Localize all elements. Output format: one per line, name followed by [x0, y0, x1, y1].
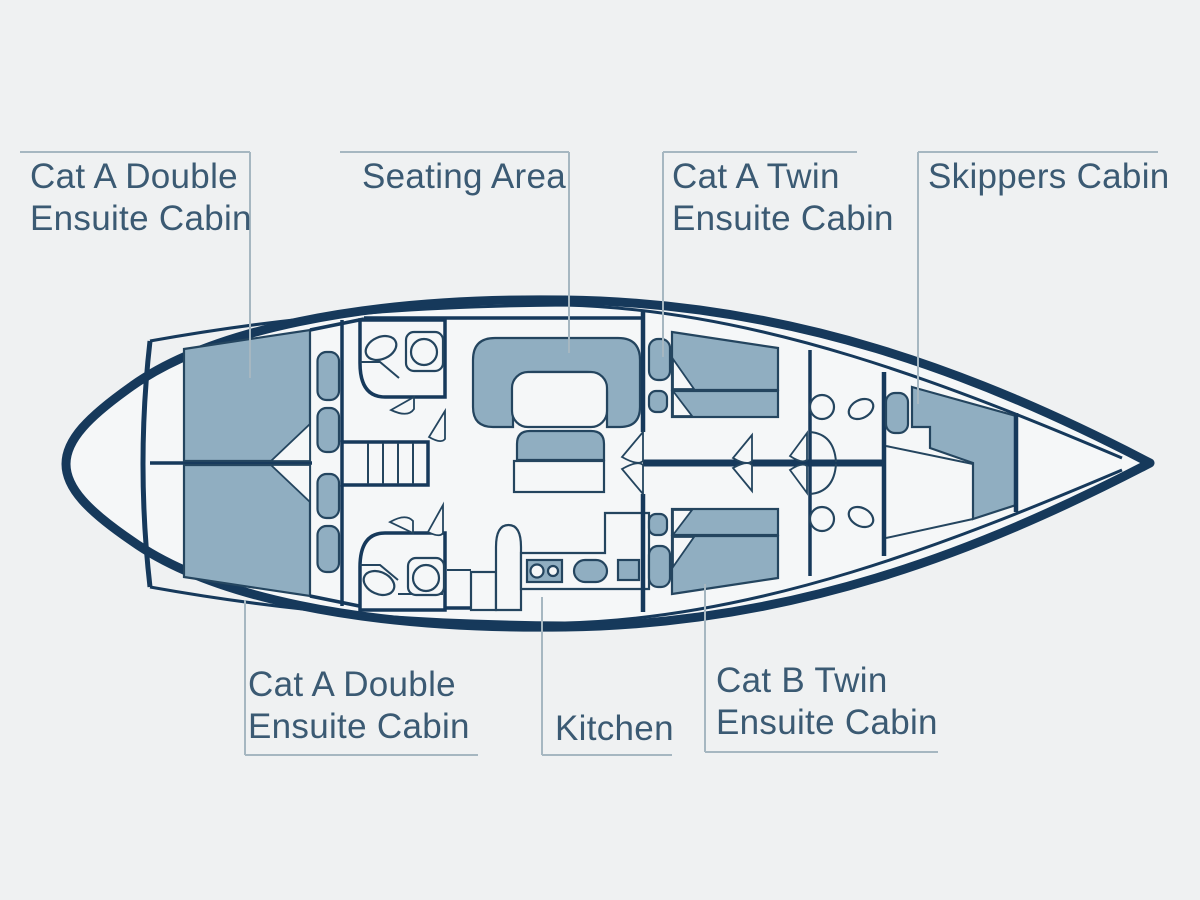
label-aft-cabin-port: Cat A Double Ensuite Cabin [30, 156, 252, 240]
pillow-icon [649, 391, 667, 412]
sink-icon [810, 395, 834, 419]
aft-shelf-1 [318, 352, 340, 400]
aft-shelf-3 [318, 474, 340, 518]
stairs [342, 442, 428, 485]
boat [66, 300, 1150, 627]
toilet-icon [411, 339, 437, 365]
label-fwd-twin-a: Cat A Twin Ensuite Cabin [672, 156, 894, 240]
galley-step [471, 572, 496, 610]
bench-seat [517, 431, 604, 460]
saloon-table [512, 372, 607, 427]
aft-shelf-4 [318, 526, 340, 572]
pillow-icon [649, 339, 670, 380]
yacht-deck-plan: Cat A Double Ensuite Cabin Seating Area … [0, 0, 1200, 900]
label-aft-cabin-stbd: Cat A Double Ensuite Cabin [248, 664, 470, 748]
label-fwd-twin-b: Cat B Twin Ensuite Cabin [716, 660, 938, 744]
pillow-icon [886, 393, 908, 433]
toilet-icon [413, 565, 439, 591]
stove-burner-icon [548, 566, 558, 576]
pillow-icon [649, 514, 667, 535]
label-skippers-cabin: Skippers Cabin [928, 156, 1170, 198]
stairs-box [342, 442, 428, 485]
stove-burner-icon [531, 565, 544, 578]
aft-shelf-2 [318, 408, 340, 452]
mast-column [496, 525, 521, 610]
galley-sink-icon [574, 560, 607, 582]
label-kitchen: Kitchen [555, 708, 674, 750]
sink-icon [810, 507, 834, 531]
pillow-icon [649, 546, 670, 587]
bench-table [514, 461, 604, 492]
label-seating-area: Seating Area [362, 156, 566, 198]
deck-plan-svg [0, 0, 1200, 900]
galley-cupboard [618, 560, 639, 580]
